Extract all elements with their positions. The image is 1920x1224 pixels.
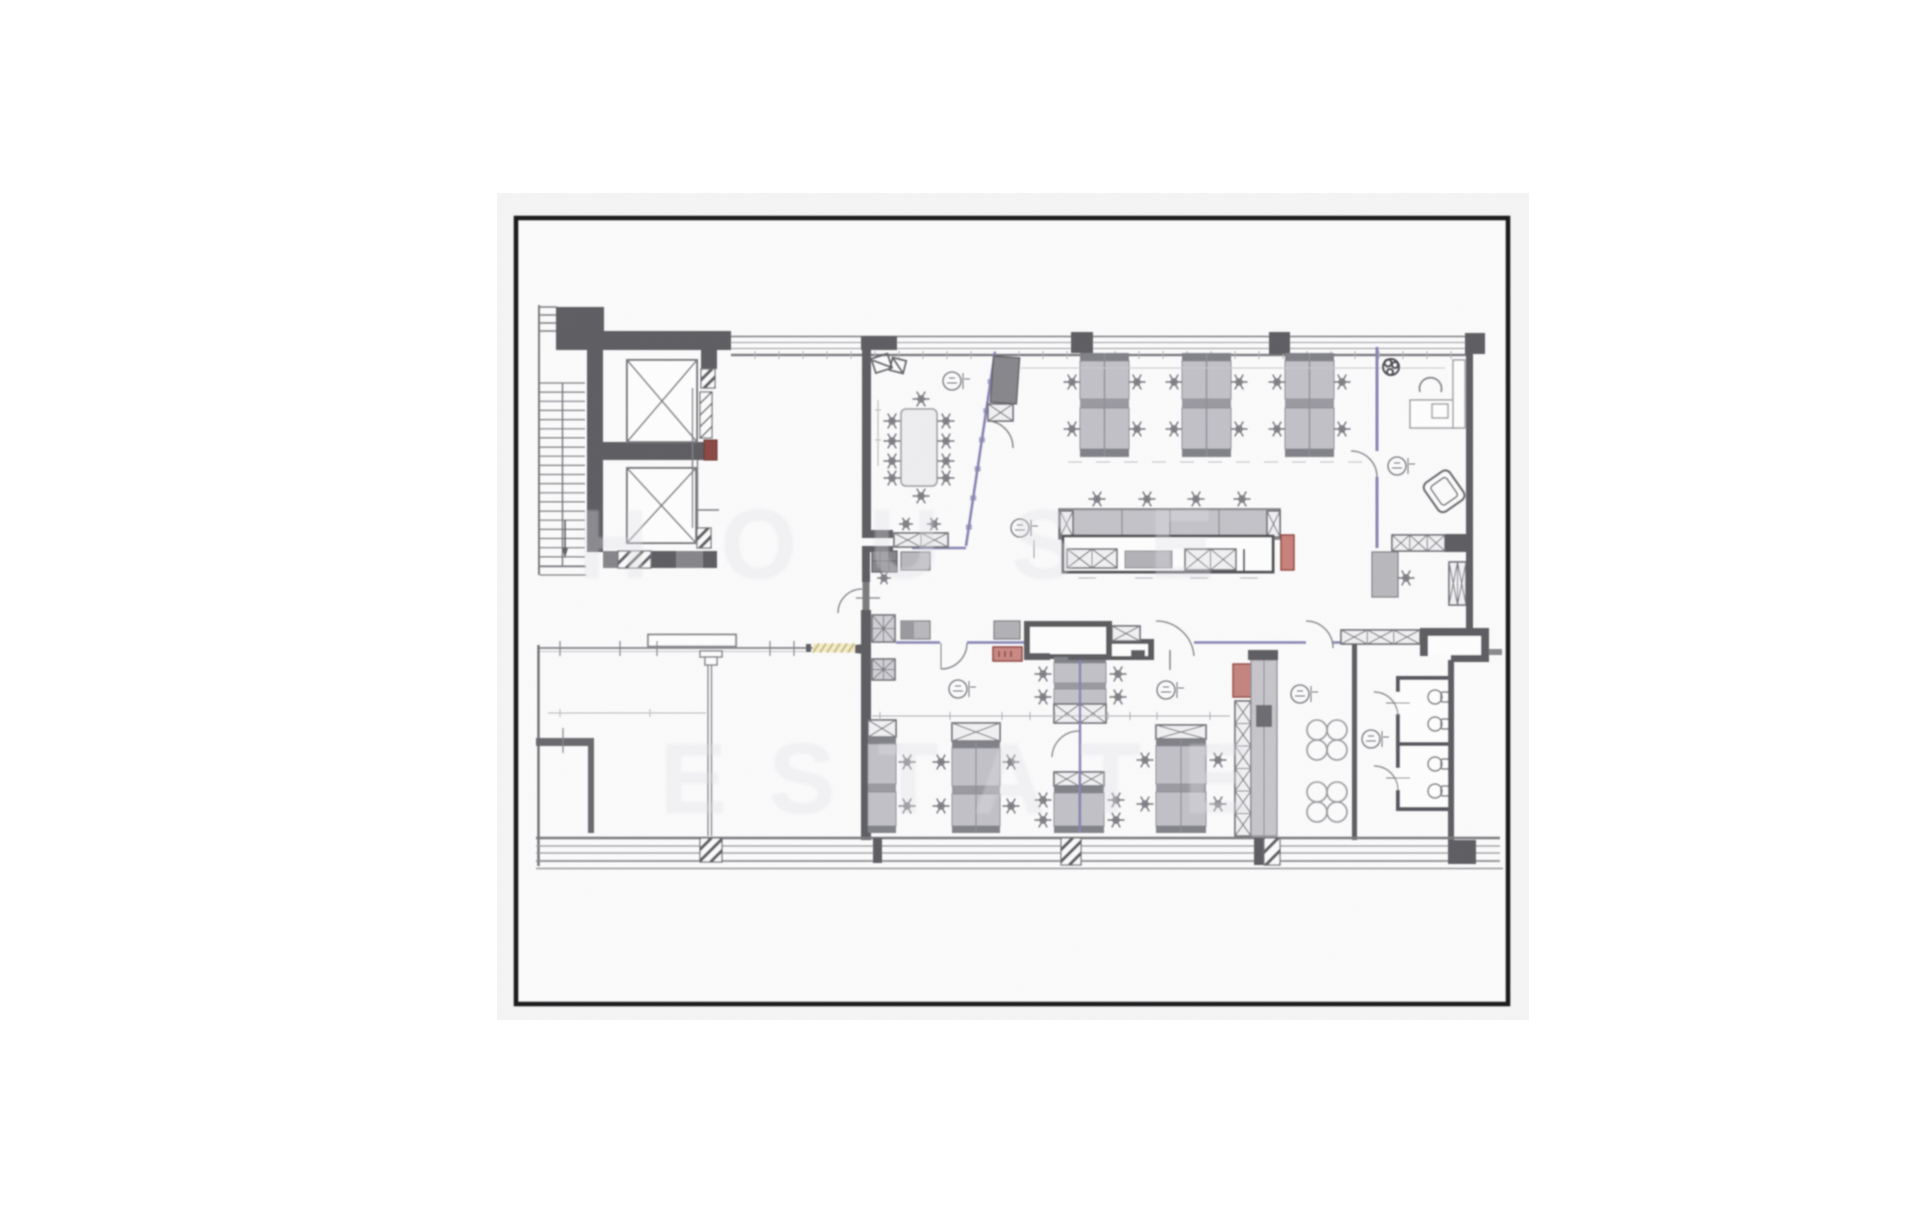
svg-text:ESTATE: ESTATE [660,723,1292,835]
svg-text:HOUSE: HOUSE [578,489,1287,599]
